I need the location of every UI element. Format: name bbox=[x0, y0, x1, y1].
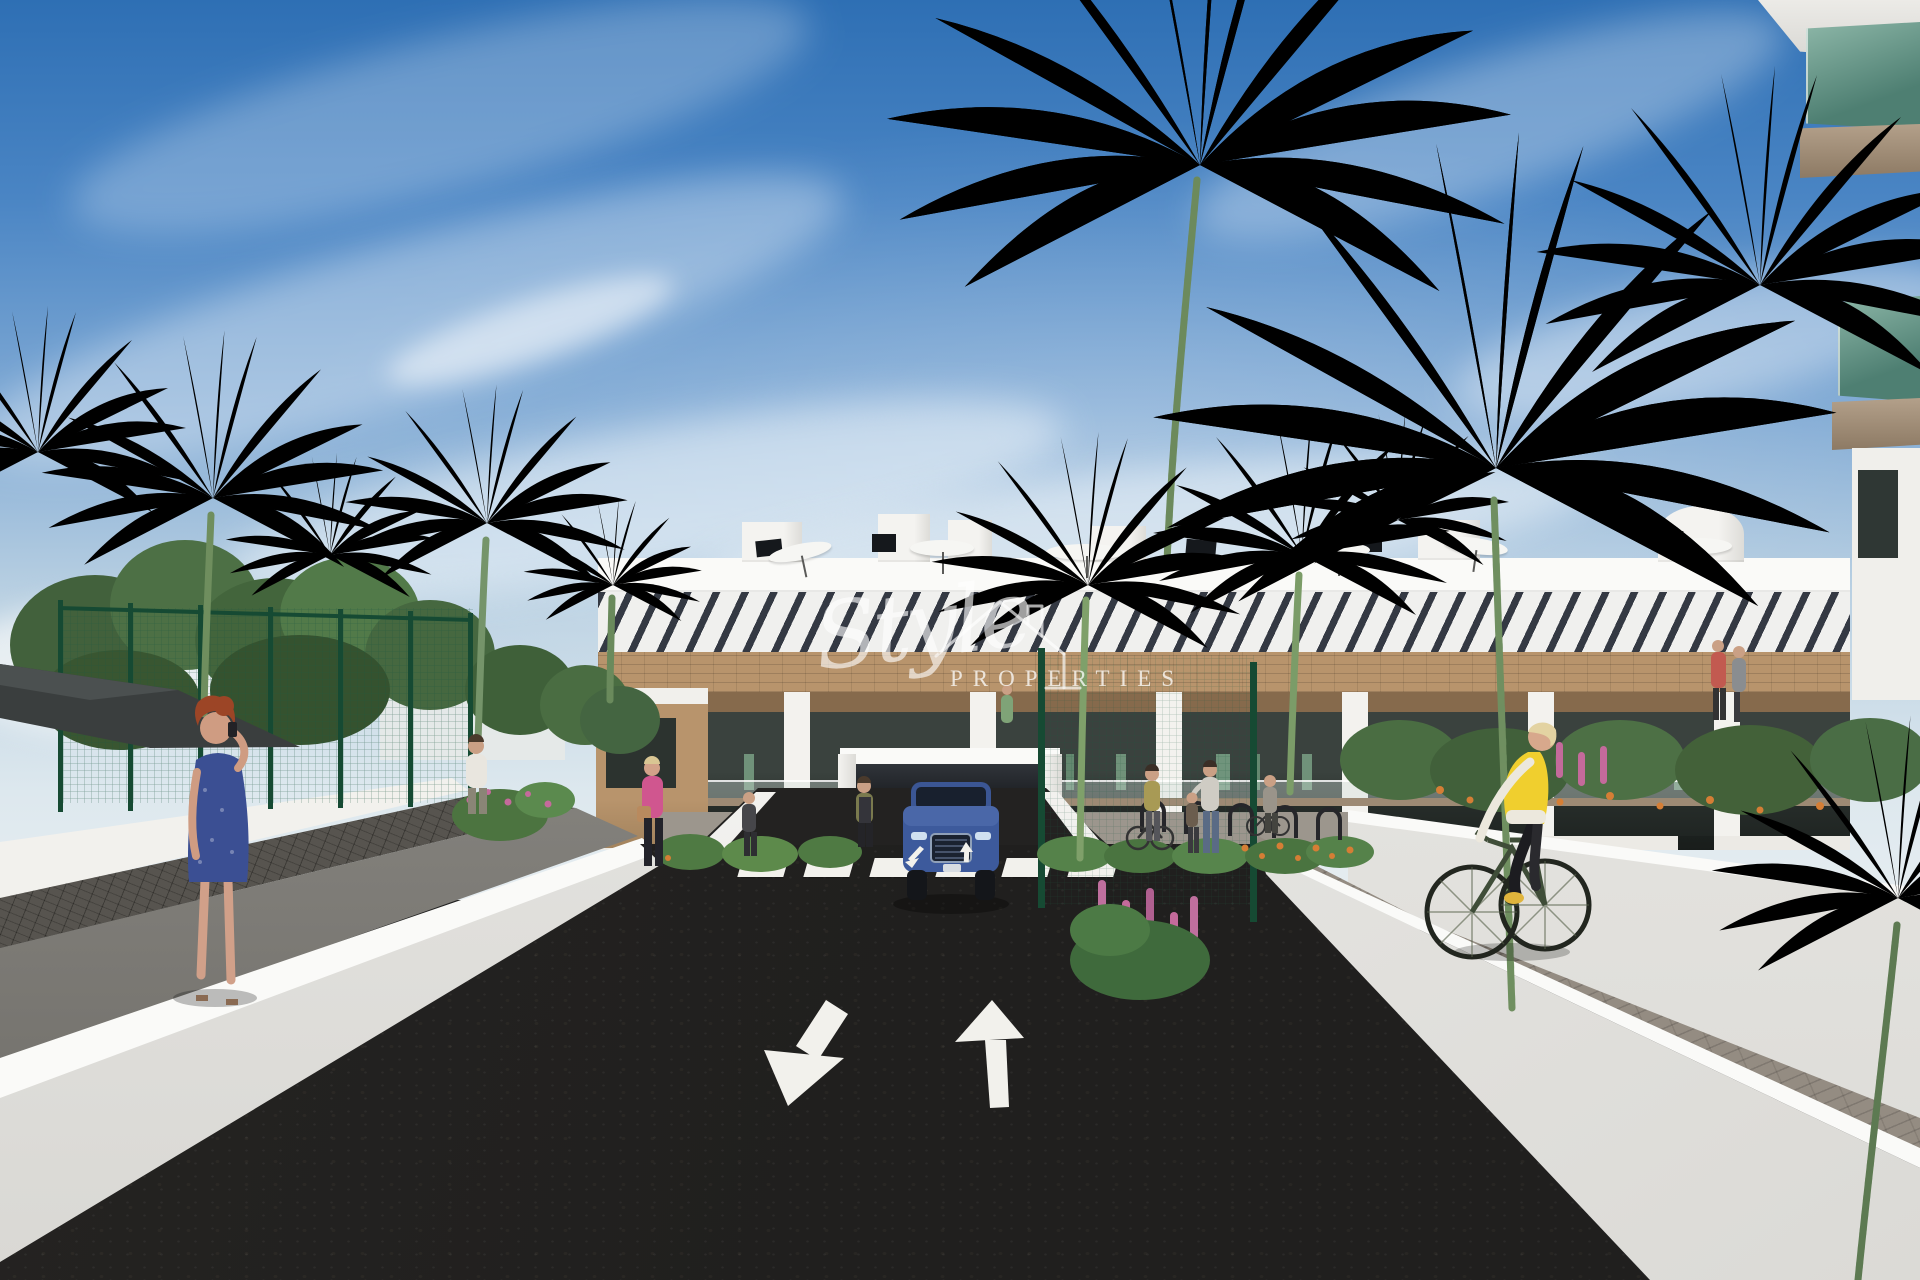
watermark-caps-text: PROPERTIES bbox=[950, 666, 1184, 692]
scene-architectural-render: Style PROPERTIES bbox=[0, 0, 1920, 1280]
watermark: Style PROPERTIES bbox=[770, 570, 1190, 720]
blue-suv bbox=[893, 782, 1009, 914]
lane-arrows bbox=[764, 1000, 1024, 1108]
pedestrian-near-ramp bbox=[742, 792, 757, 856]
pedestrian-woman-olive bbox=[856, 776, 873, 847]
pedestrian-woman-pink bbox=[637, 756, 663, 866]
